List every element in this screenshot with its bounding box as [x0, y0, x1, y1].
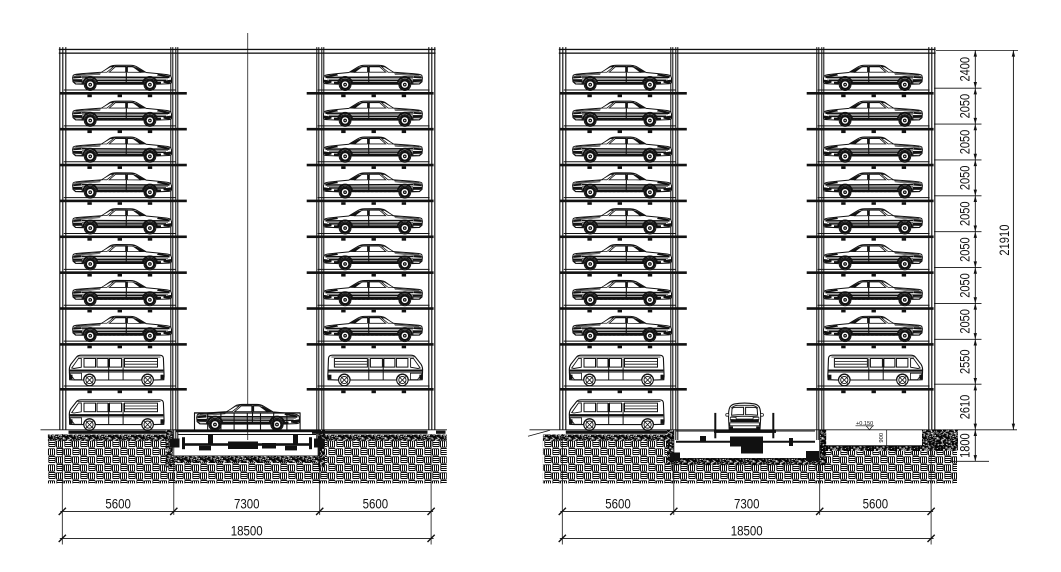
- svg-text:2050: 2050: [956, 237, 972, 262]
- svg-text:2610: 2610: [956, 395, 972, 420]
- svg-text:2550: 2550: [956, 349, 972, 374]
- svg-text:5600: 5600: [363, 495, 389, 511]
- svg-text:5600: 5600: [105, 495, 131, 511]
- svg-text:900: 900: [879, 433, 885, 443]
- svg-text:7300: 7300: [234, 495, 260, 511]
- svg-text:2050: 2050: [956, 273, 972, 298]
- svg-text:2050: 2050: [956, 201, 972, 226]
- svg-text:2050: 2050: [956, 165, 972, 190]
- svg-text:5600: 5600: [863, 495, 889, 511]
- svg-text:21910: 21910: [996, 224, 1012, 255]
- svg-text:2400: 2400: [956, 57, 972, 82]
- svg-text:18500: 18500: [231, 522, 263, 538]
- svg-text:7300: 7300: [734, 495, 760, 511]
- svg-text:2050: 2050: [956, 309, 972, 334]
- svg-text:2050: 2050: [956, 94, 972, 119]
- svg-text:2050: 2050: [956, 130, 972, 155]
- svg-text:1800: 1800: [956, 433, 972, 458]
- svg-text:18500: 18500: [731, 522, 763, 538]
- svg-text:5600: 5600: [605, 495, 631, 511]
